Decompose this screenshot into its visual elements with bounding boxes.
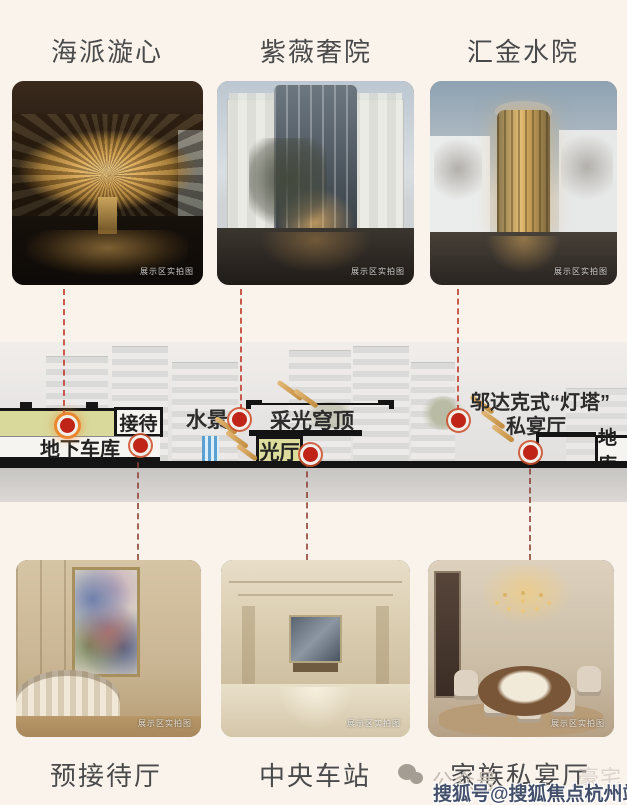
photo5-console-layer: [293, 663, 338, 672]
label-basement-box: 地库: [595, 435, 627, 464]
connector-line-prereception: [137, 452, 139, 560]
photo3-left-tree-layer: [434, 138, 483, 207]
photo6-chair-5: [577, 666, 601, 696]
label-reception: 接待: [119, 409, 157, 436]
photo5-right-column-layer: [376, 606, 389, 687]
photo6-chair-1: [454, 670, 478, 700]
dome-corner-left: [246, 400, 262, 409]
photo3-right-tree-layer: [561, 134, 613, 207]
label-light-hall-box: 光厅: [256, 436, 303, 464]
photo5-art-panel-layer: [289, 615, 342, 663]
connector-line-station: [306, 461, 308, 560]
photo3-glass-tower-layer: [497, 110, 549, 234]
photo1-stem-layer: [98, 197, 117, 234]
photo5-caption: 展示区实拍图: [347, 718, 401, 729]
bottom-photo-title-2: 中央车站: [230, 756, 400, 793]
dome-corner-right: [378, 400, 394, 409]
photo5-left-column-layer: [242, 606, 255, 687]
photo2-tree-layer: [249, 138, 328, 236]
marker-green-roof: [57, 415, 78, 436]
photo5-floor-shine-layer: [278, 687, 354, 729]
photo6-chandelier-lights: [521, 599, 525, 603]
wechat-icon: [398, 764, 428, 790]
label-reception-box: 接待: [114, 407, 163, 437]
label-underground-garage: 地下车库: [40, 433, 120, 462]
top-photo-title-1: 海派漩心: [22, 32, 192, 69]
marker-private-banquet: [520, 442, 541, 463]
marker-reception: [130, 435, 151, 456]
photo-pre-reception: 展示区实拍图: [16, 560, 201, 737]
section-roof-post-2: [86, 402, 98, 408]
photo-central-station: 展示区实拍图: [221, 560, 410, 737]
section-water-stripes: [202, 436, 219, 462]
photo-family-banquet: 展示区实拍图: [428, 560, 614, 737]
marker-water-feature: [229, 409, 250, 430]
photo-lighthouse-court: 展示区实拍图: [430, 81, 617, 285]
wechat-bubble-small: [410, 772, 423, 784]
photo3-reflection-layer: [486, 236, 561, 273]
photo6-dining-table-layer: [478, 666, 571, 716]
marker-light-hall: [300, 444, 321, 465]
photo6-caption: 展示区实拍图: [551, 718, 605, 729]
banquet-floor-bar: [536, 432, 596, 437]
section-roof-post-1: [20, 402, 32, 408]
connector-line-waterscape: [240, 289, 242, 410]
photo-vortex-lobby: 展示区实拍图: [12, 81, 203, 285]
photo1-caption: 展示区实拍图: [140, 266, 194, 277]
photo6-chandelier-glow-layer: [480, 565, 573, 625]
photo-villa-facade: 展示区实拍图: [217, 81, 414, 285]
photo4-caption: 展示区实拍图: [138, 718, 192, 729]
sohu-watermark: 搜狐号@搜狐焦点杭州站: [433, 779, 627, 805]
photo5-ceiling-line-1: [229, 581, 403, 583]
photo5-ceiling-line-2: [238, 594, 393, 596]
section-ground-strip: [0, 468, 627, 502]
photo2-caption: 展示区实拍图: [351, 266, 405, 277]
connector-line-lighthouse: [457, 289, 459, 411]
photo4-painting-layer: [72, 567, 140, 677]
photo3-caption: 展示区实拍图: [554, 266, 608, 277]
top-photo-title-2: 紫薇奢院: [231, 32, 401, 69]
connector-line-banquet: [529, 459, 531, 560]
page: 海派漩心 紫薇奢院 汇金水院 展示区实拍图 展示区实拍图 展示区实拍图: [0, 0, 627, 805]
top-photo-title-3: 汇金水院: [438, 32, 608, 69]
connector-line-vortex: [63, 289, 65, 416]
marker-lighthouse: [448, 410, 469, 431]
bottom-photo-title-1: 预接待厅: [21, 756, 191, 793]
